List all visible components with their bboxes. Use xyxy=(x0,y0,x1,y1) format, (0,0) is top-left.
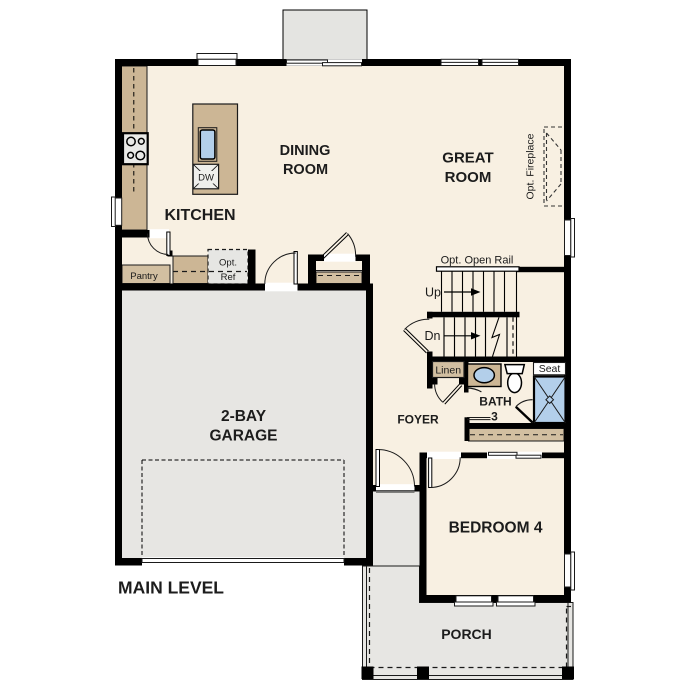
svg-text:BATH: BATH xyxy=(479,395,511,409)
svg-text:GARAGE: GARAGE xyxy=(209,428,277,445)
svg-text:2-BAY: 2-BAY xyxy=(221,408,267,425)
svg-text:Ref: Ref xyxy=(221,272,236,283)
svg-text:KITCHEN: KITCHEN xyxy=(164,207,235,224)
svg-text:GREAT: GREAT xyxy=(442,150,493,167)
svg-text:Dn: Dn xyxy=(425,329,441,343)
svg-text:3: 3 xyxy=(491,409,498,423)
svg-text:DINING: DINING xyxy=(280,143,331,159)
svg-text:PORCH: PORCH xyxy=(441,626,492,642)
svg-text:Seat: Seat xyxy=(539,363,561,375)
svg-text:Linen: Linen xyxy=(435,365,461,377)
svg-text:Pantry: Pantry xyxy=(130,271,158,282)
svg-text:DW: DW xyxy=(198,173,214,184)
svg-text:BEDROOM 4: BEDROOM 4 xyxy=(449,520,543,537)
svg-text:ROOM: ROOM xyxy=(283,162,328,178)
svg-text:FOYER: FOYER xyxy=(397,412,439,426)
svg-text:Opt. Open Rail: Opt. Open Rail xyxy=(441,255,514,267)
svg-text:ROOM: ROOM xyxy=(445,169,492,186)
svg-text:Up: Up xyxy=(425,286,441,300)
svg-text:MAIN LEVEL: MAIN LEVEL xyxy=(118,578,224,598)
svg-text:Opt.: Opt. xyxy=(219,258,237,269)
svg-text:Opt. Fireplace: Opt. Fireplace xyxy=(525,133,537,199)
